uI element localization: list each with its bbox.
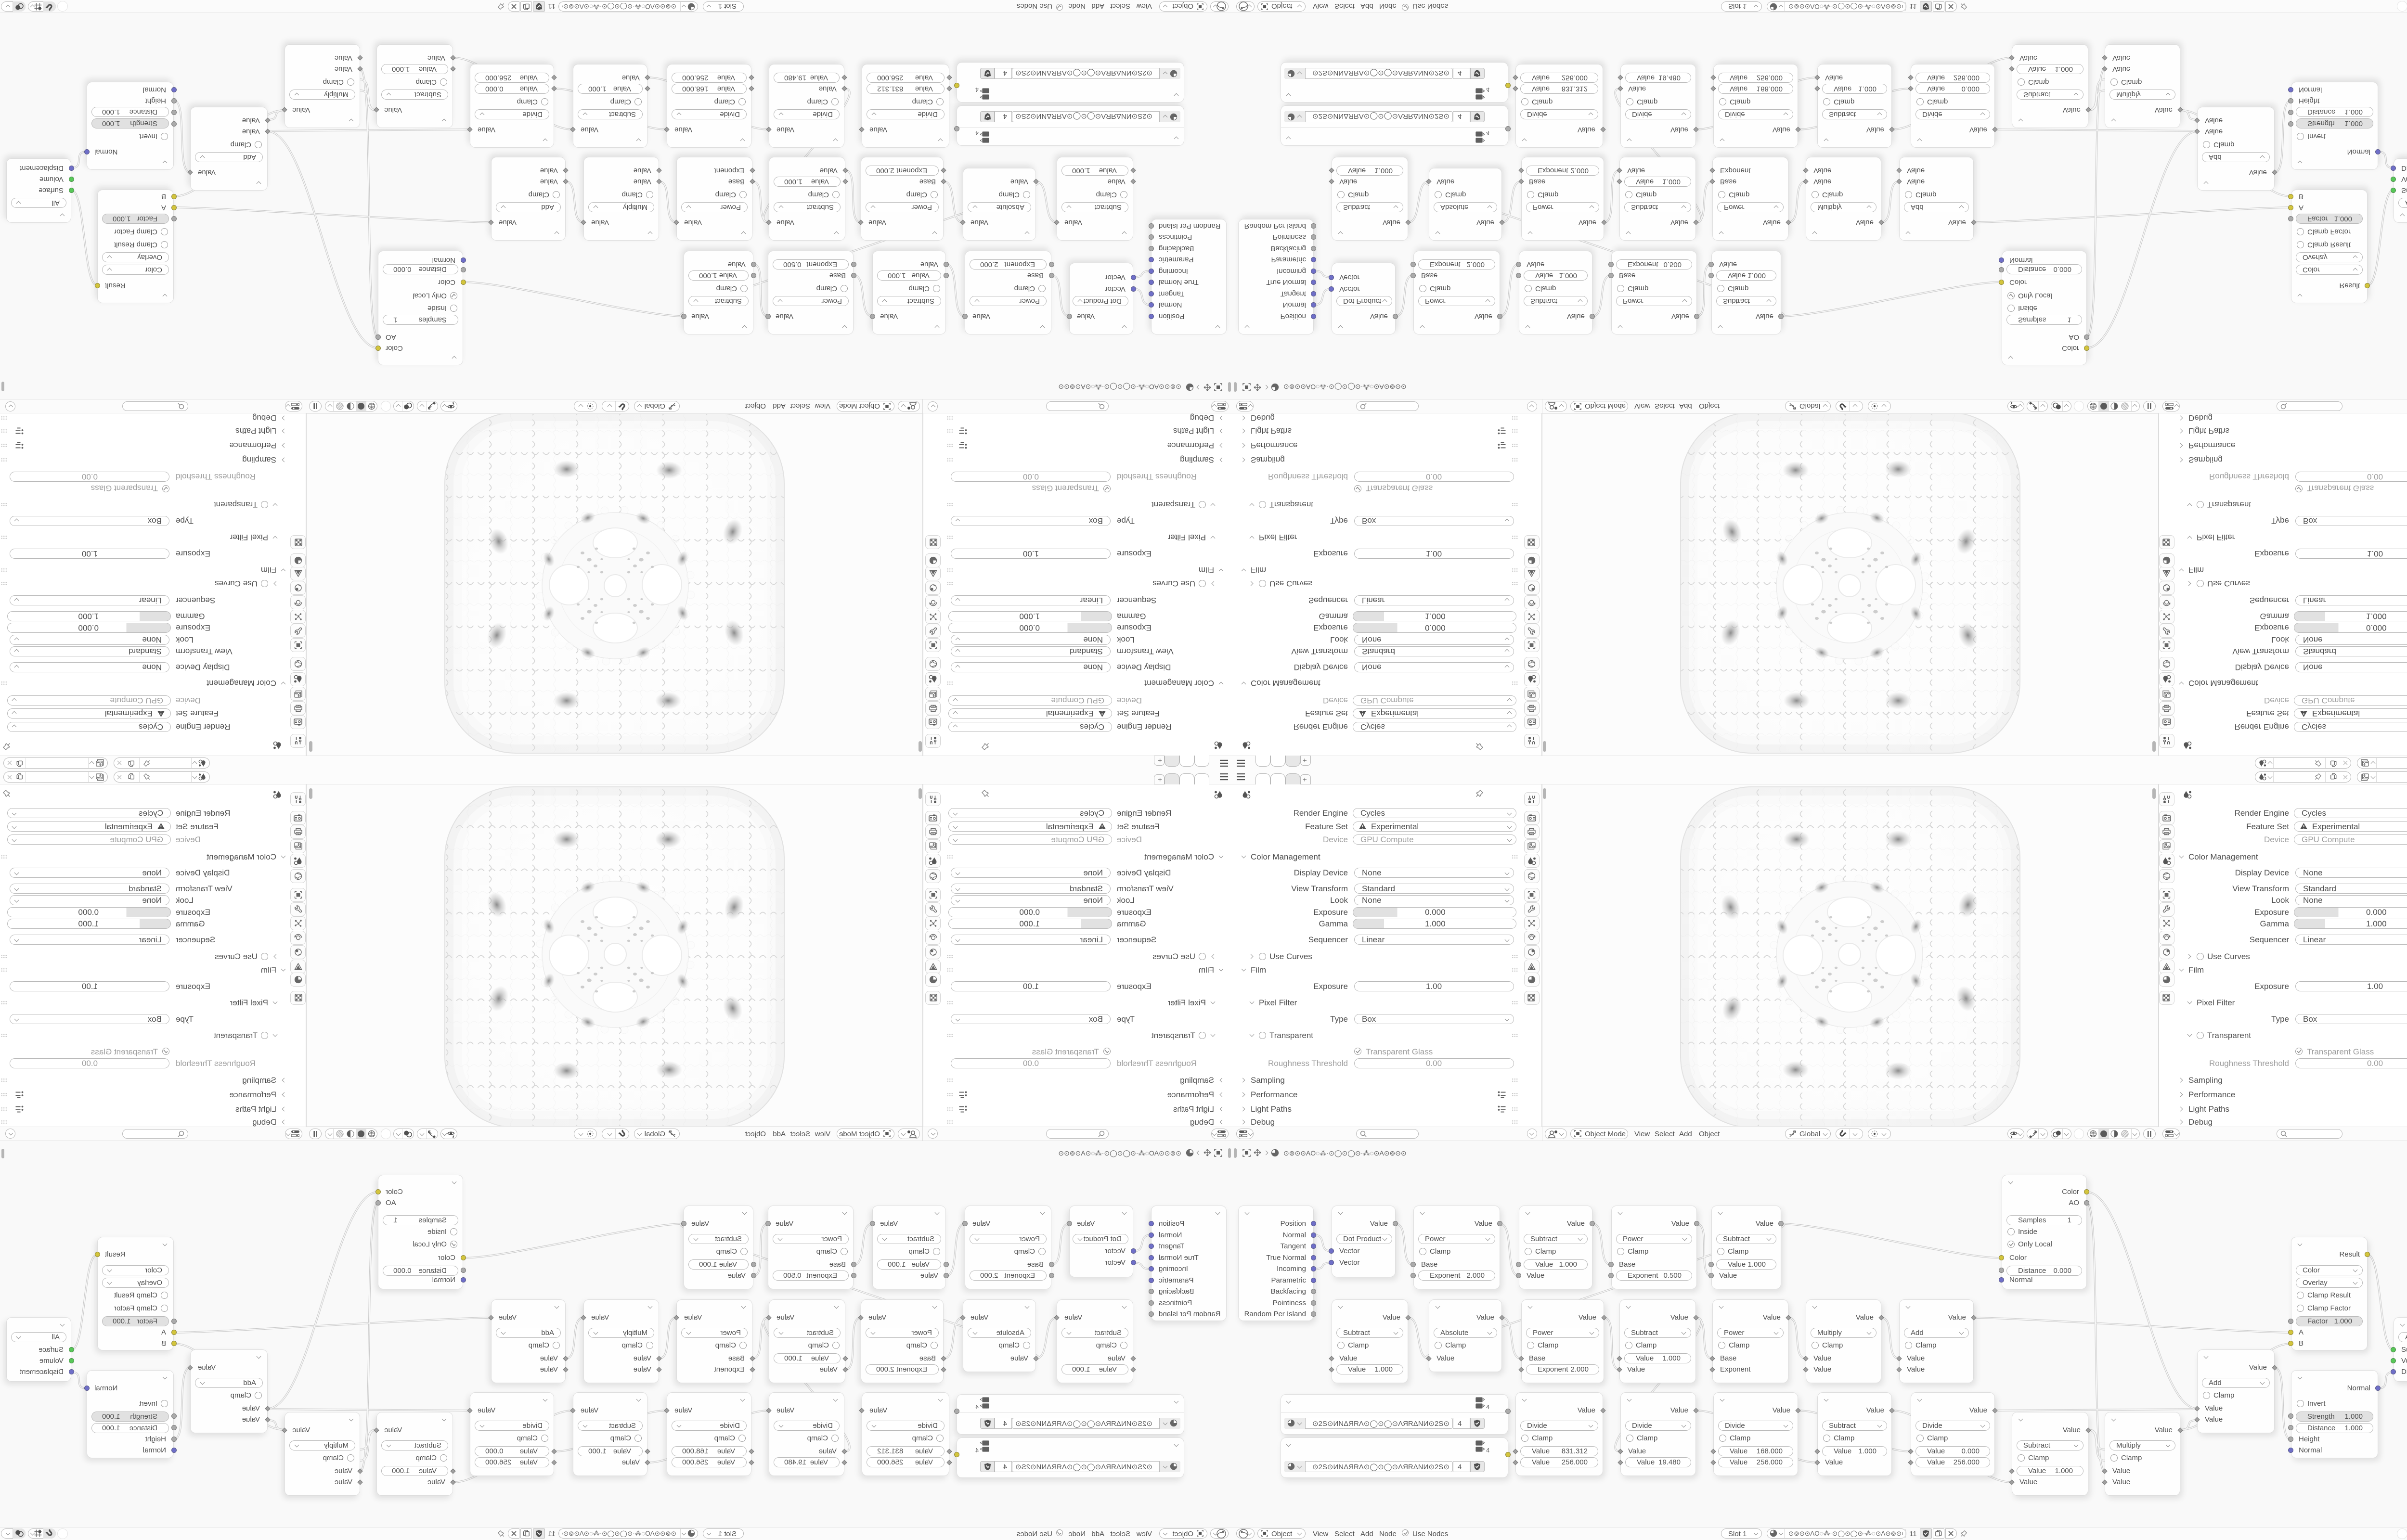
svg-text:4: 4 — [1486, 1447, 1489, 1453]
svg-text:4: 4 — [1486, 87, 1489, 93]
svg-text:4: 4 — [975, 1403, 979, 1410]
svg-text:4: 4 — [975, 1447, 979, 1453]
svg-text:4: 4 — [1486, 130, 1489, 137]
svg-text:4: 4 — [1486, 1403, 1489, 1410]
svg-text:4: 4 — [975, 130, 979, 137]
svg-text:4: 4 — [975, 87, 979, 93]
